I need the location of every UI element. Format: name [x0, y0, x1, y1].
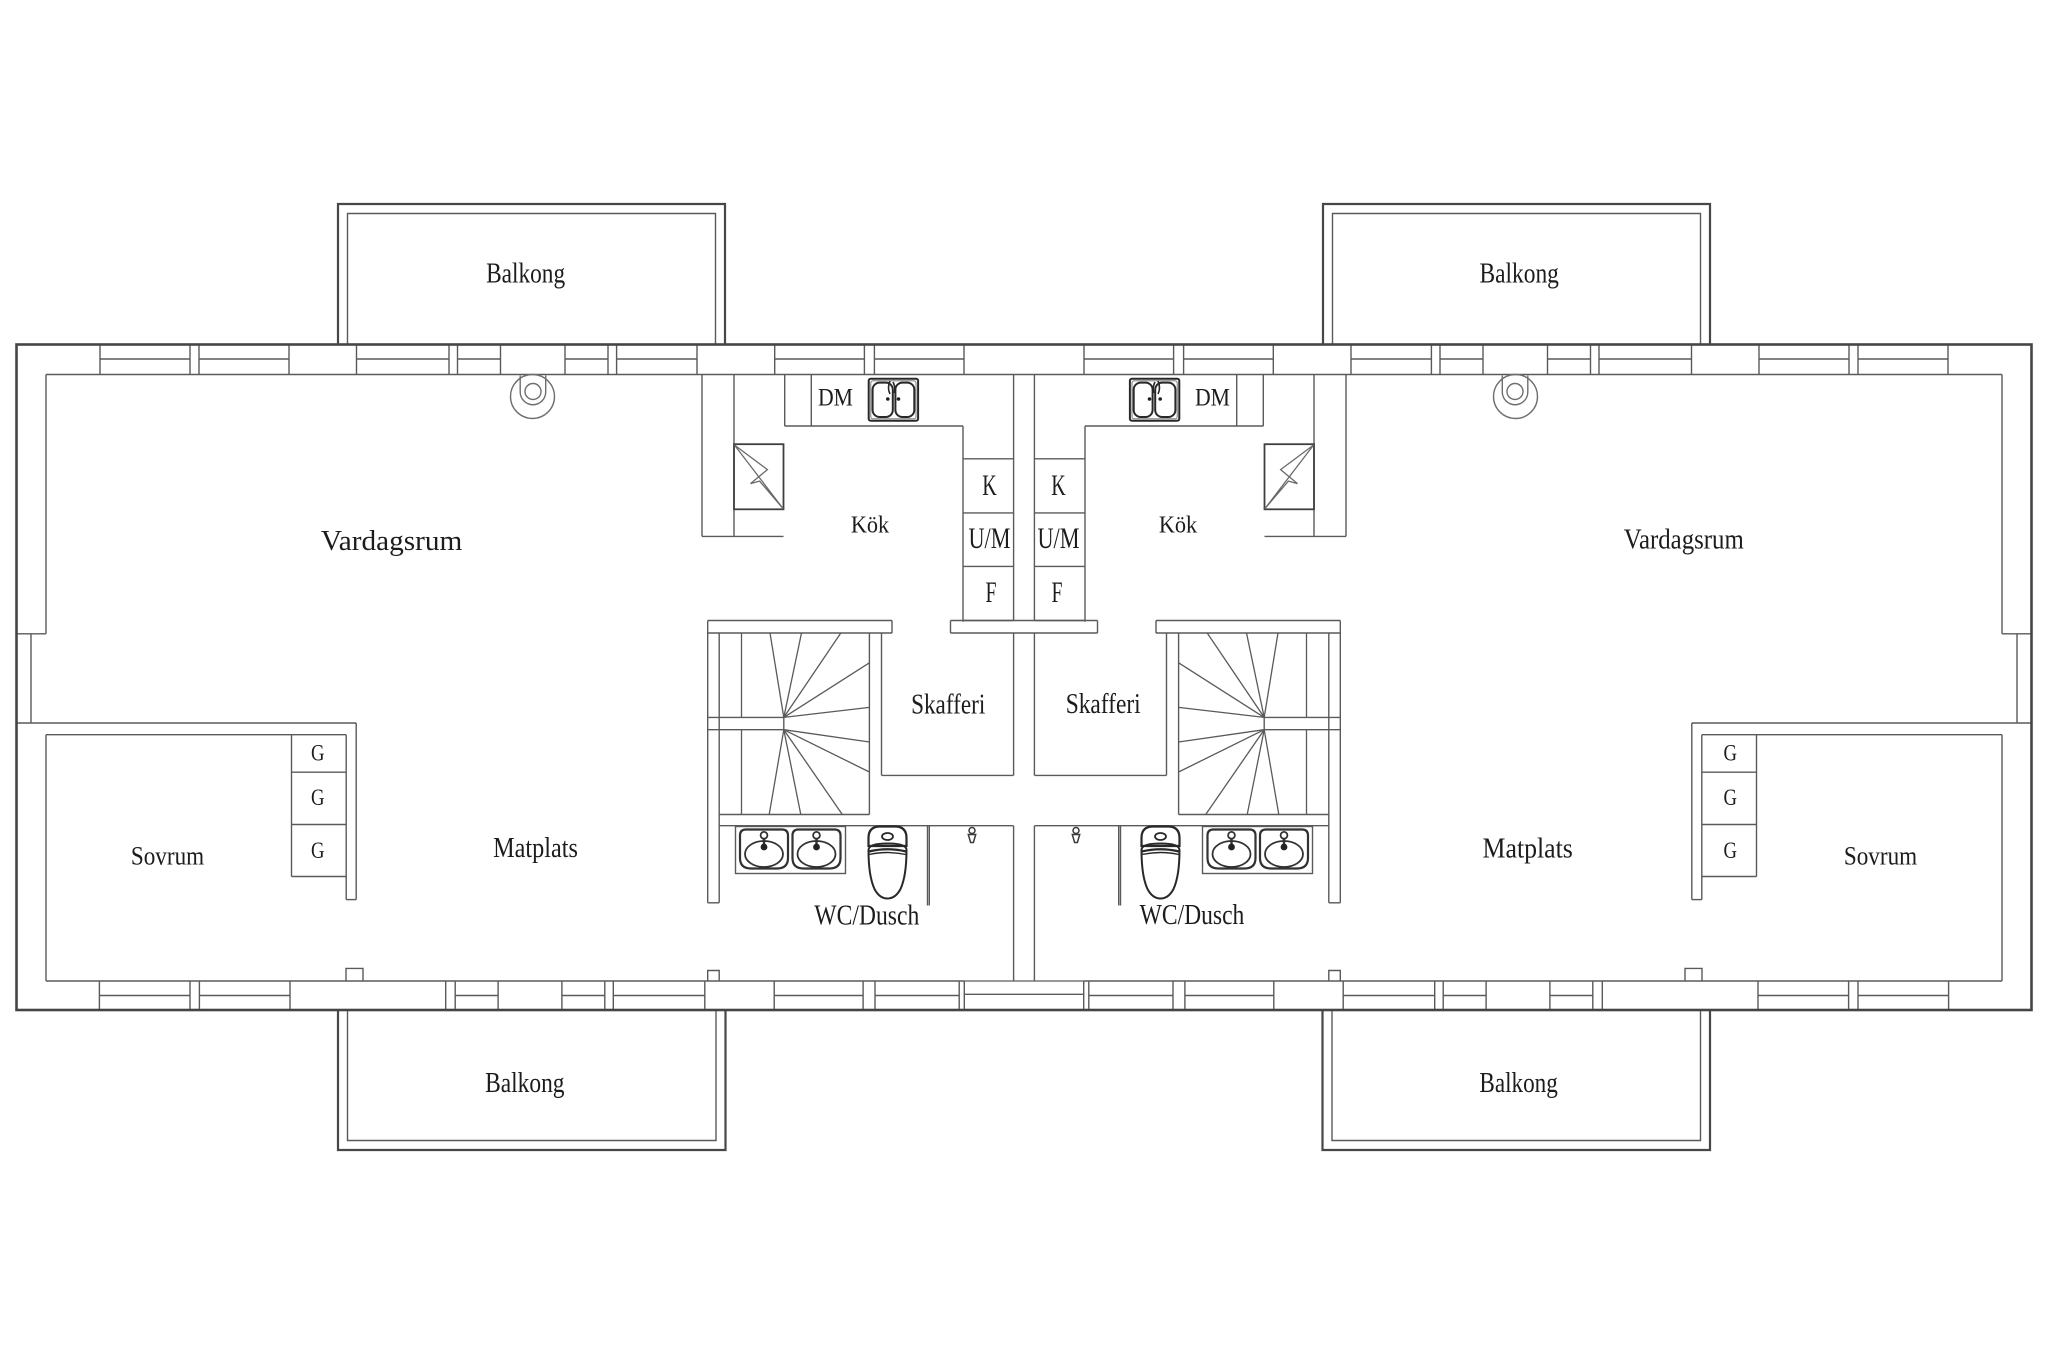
svg-text:Vardagsrum: Vardagsrum	[1624, 524, 1744, 556]
svg-text:G: G	[1724, 785, 1738, 811]
svg-text:Balkong: Balkong	[485, 1068, 564, 1099]
svg-text:Kök: Kök	[1159, 512, 1198, 539]
svg-text:Vardagsrum: Vardagsrum	[321, 525, 463, 557]
svg-text:DM: DM	[1195, 383, 1230, 412]
svg-text:F: F	[1052, 576, 1063, 609]
svg-text:Matplats: Matplats	[1483, 833, 1573, 865]
svg-text:G: G	[311, 838, 325, 864]
svg-text:Matplats: Matplats	[493, 832, 578, 864]
svg-text:K: K	[982, 469, 997, 502]
svg-text:Skafferi: Skafferi	[911, 689, 985, 721]
svg-text:DM: DM	[818, 383, 853, 412]
svg-text:Balkong: Balkong	[1479, 1068, 1557, 1099]
svg-text:G: G	[311, 740, 325, 766]
svg-text:G: G	[1724, 740, 1738, 766]
svg-text:G: G	[311, 785, 325, 811]
svg-text:G: G	[1724, 838, 1738, 864]
svg-text:Skafferi: Skafferi	[1066, 688, 1141, 720]
svg-text:WC/Dusch: WC/Dusch	[1140, 899, 1245, 931]
svg-text:U/M: U/M	[969, 522, 1011, 555]
svg-text:K: K	[1051, 469, 1066, 502]
svg-text:Balkong: Balkong	[1480, 258, 1559, 289]
svg-text:Kök: Kök	[851, 512, 890, 539]
svg-text:WC/Dusch: WC/Dusch	[814, 900, 919, 932]
svg-text:Sovrum: Sovrum	[1844, 841, 1918, 871]
svg-text:Sovrum: Sovrum	[131, 841, 205, 871]
svg-text:F: F	[986, 576, 997, 609]
svg-text:Balkong: Balkong	[486, 258, 565, 289]
svg-text:U/M: U/M	[1038, 522, 1080, 555]
